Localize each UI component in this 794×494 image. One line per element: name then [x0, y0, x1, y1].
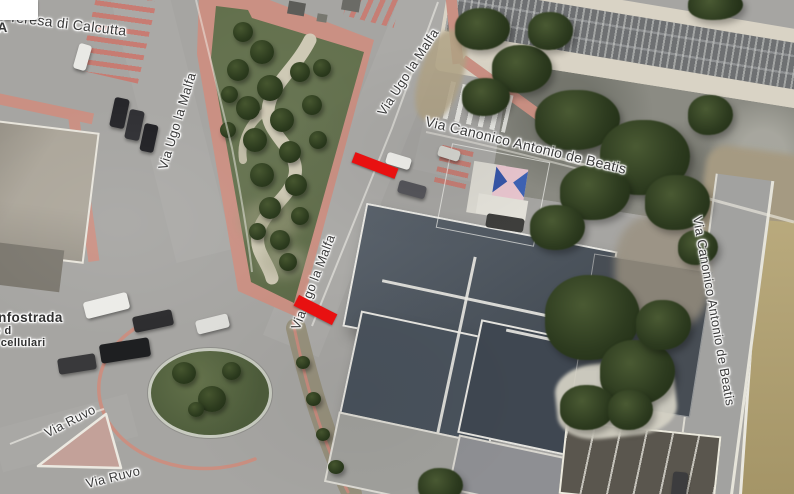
park-bush [250, 163, 274, 187]
park-bush [309, 131, 327, 149]
verge-bush [306, 392, 321, 406]
park-bush [257, 75, 283, 101]
ui-panel-fragment [0, 0, 38, 20]
satellite-map-canvas[interactable]: de Teresa di Calcutta IA Via Ugo la Malf… [0, 0, 794, 494]
park-bush [270, 230, 290, 250]
park-bush [233, 22, 253, 42]
park-bush [259, 197, 281, 219]
poi-label-infostrada[interactable]: Infostrada o d i cellulari [0, 310, 63, 349]
park-bush [250, 40, 274, 64]
verge-bush [316, 428, 330, 441]
verge-bush [328, 460, 344, 474]
park-bush [249, 223, 266, 240]
park-bush [270, 108, 294, 132]
park-bush [279, 141, 301, 163]
tree [418, 468, 463, 494]
park-bush [302, 95, 322, 115]
poi-name[interactable]: Infostrada [0, 310, 63, 325]
building-roof [0, 242, 64, 292]
island-bush [188, 402, 204, 417]
park-bush [243, 128, 267, 152]
park-bush [279, 253, 297, 271]
car-on-road [671, 471, 689, 494]
park-bush [291, 207, 309, 225]
park-bush [236, 96, 260, 120]
island-bush [222, 362, 241, 380]
poi-detail-line: o d [0, 325, 63, 337]
park-bush [285, 174, 307, 196]
poi-detail-line: i cellulari [0, 337, 63, 349]
park-bush [313, 59, 331, 77]
park-bush [221, 86, 238, 103]
building-roof [0, 120, 100, 264]
plaza-bench [316, 13, 327, 23]
park-bush [227, 59, 249, 81]
island-bush [172, 362, 196, 384]
park-bush [220, 122, 236, 138]
park-bush [290, 62, 310, 82]
plaza-kiosk [287, 1, 306, 17]
verge-bush [296, 356, 310, 369]
